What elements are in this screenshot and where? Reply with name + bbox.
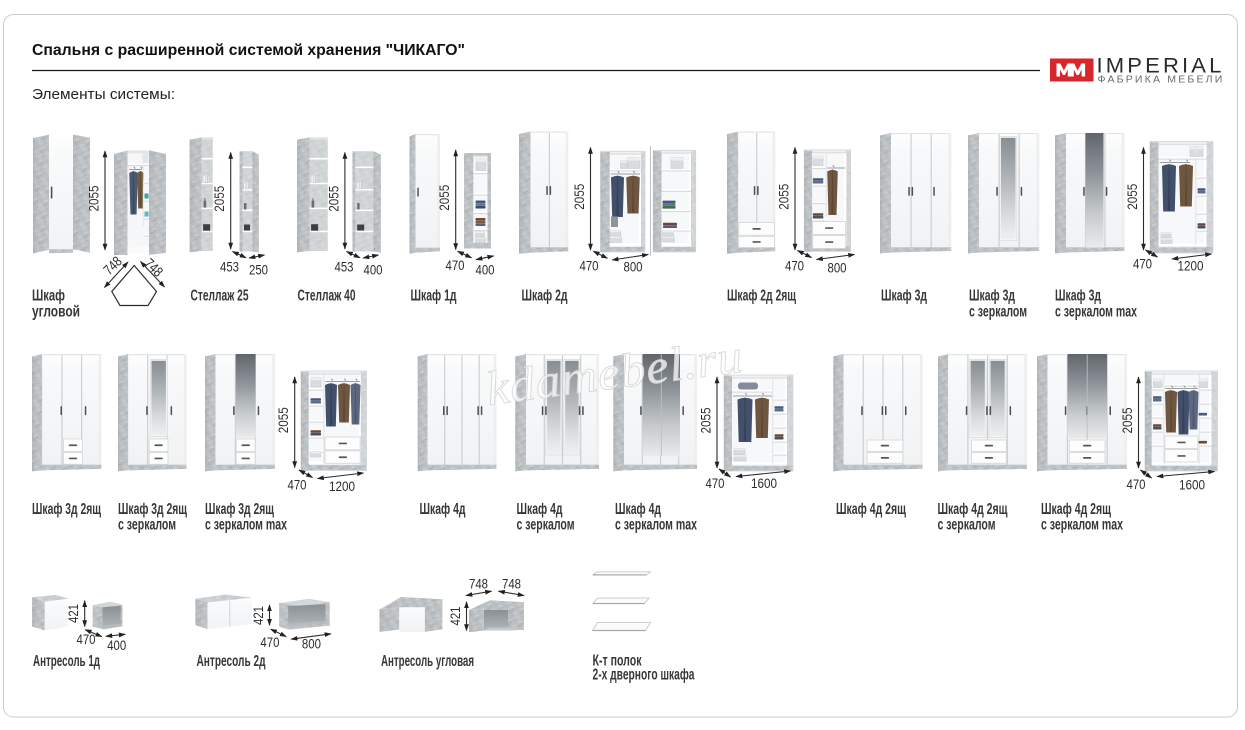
- svg-text:Шкаф 1д: Шкаф 1д: [411, 288, 457, 305]
- svg-text:1600: 1600: [1179, 478, 1205, 494]
- svg-text:Стеллаж 25: Стеллаж 25: [191, 288, 249, 305]
- svg-text:Шкаф: Шкаф: [32, 288, 65, 305]
- svg-text:800: 800: [828, 261, 847, 277]
- svg-text:421: 421: [448, 606, 464, 625]
- svg-text:2055: 2055: [1125, 184, 1141, 210]
- svg-text:Шкаф 4д 2ящ: Шкаф 4д 2ящ: [836, 501, 906, 518]
- svg-text:250: 250: [249, 263, 268, 279]
- svg-text:2055: 2055: [777, 184, 793, 210]
- svg-text:453: 453: [220, 260, 239, 276]
- svg-text:2055: 2055: [1120, 407, 1136, 433]
- svg-text:Шкаф 3д 2ящ: Шкаф 3д 2ящ: [118, 501, 187, 518]
- svg-text:470: 470: [706, 476, 725, 492]
- svg-text:748: 748: [502, 577, 521, 593]
- svg-text:2055: 2055: [212, 186, 228, 212]
- svg-text:Шкаф 3д: Шкаф 3д: [881, 288, 927, 305]
- svg-text:ФАБРИКА МЕБЕЛИ: ФАБРИКА МЕБЕЛИ: [1098, 75, 1225, 86]
- svg-text:453: 453: [335, 260, 354, 276]
- svg-text:1200: 1200: [329, 479, 355, 495]
- svg-text:470: 470: [580, 259, 599, 275]
- svg-text:800: 800: [302, 637, 321, 653]
- svg-text:Шкаф 4д: Шкаф 4д: [517, 501, 563, 518]
- svg-text:2055: 2055: [699, 407, 715, 433]
- svg-text:Антресоль 1д: Антресоль 1д: [33, 653, 100, 670]
- svg-text:470: 470: [785, 259, 804, 275]
- svg-text:2055: 2055: [87, 185, 103, 211]
- svg-text:421: 421: [251, 606, 267, 625]
- svg-text:1200: 1200: [1178, 259, 1204, 275]
- svg-text:2-х дверного шкафа: 2-х дверного шкафа: [593, 667, 695, 684]
- svg-text:Шкаф 3д: Шкаф 3д: [969, 288, 1015, 305]
- svg-text:Шкаф 2д: Шкаф 2д: [522, 288, 568, 305]
- svg-text:400: 400: [364, 263, 383, 279]
- svg-text:1600: 1600: [751, 476, 777, 492]
- svg-text:с зеркалом: с зеркалом: [969, 304, 1027, 321]
- svg-text:с зеркалом max: с зеркалом max: [1041, 517, 1123, 534]
- svg-text:Антресоль 2д: Антресоль 2д: [197, 653, 266, 670]
- svg-text:Шкаф 3д 2ящ: Шкаф 3д 2ящ: [32, 501, 101, 518]
- svg-text:421: 421: [66, 604, 82, 623]
- svg-text:Элементы системы:: Элементы системы:: [32, 86, 175, 103]
- svg-text:Шкаф 3д: Шкаф 3д: [1055, 288, 1101, 305]
- svg-text:Шкаф 3д 2ящ: Шкаф 3д 2ящ: [205, 501, 274, 518]
- svg-text:470: 470: [446, 258, 465, 274]
- svg-text:400: 400: [476, 263, 495, 279]
- svg-text:2055: 2055: [276, 407, 292, 433]
- svg-text:с зеркалом: с зеркалом: [938, 517, 996, 534]
- svg-text:2055: 2055: [326, 186, 342, 212]
- svg-text:с зеркалом max: с зеркалом max: [205, 517, 287, 534]
- svg-text:748: 748: [101, 254, 126, 279]
- svg-text:470: 470: [260, 635, 279, 651]
- svg-text:Стеллаж 40: Стеллаж 40: [298, 288, 356, 305]
- svg-text:с зеркалом max: с зеркалом max: [1055, 304, 1137, 321]
- svg-text:400: 400: [107, 638, 126, 654]
- svg-text:2055: 2055: [572, 184, 588, 210]
- svg-text:470: 470: [77, 632, 96, 648]
- svg-text:Шкаф 2д 2ящ: Шкаф 2д 2ящ: [727, 288, 796, 305]
- svg-text:Спальня с расширенной системой: Спальня с расширенной системой хранения …: [32, 42, 465, 59]
- svg-text:с зеркалом: с зеркалом: [118, 517, 176, 534]
- svg-text:470: 470: [1127, 477, 1146, 493]
- svg-text:с зеркалом: с зеркалом: [517, 517, 575, 534]
- svg-text:Шкаф 4д: Шкаф 4д: [420, 501, 466, 518]
- svg-text:470: 470: [1133, 257, 1152, 273]
- svg-text:800: 800: [624, 260, 643, 276]
- svg-text:с зеркалом max: с зеркалом max: [615, 517, 697, 534]
- svg-text:Шкаф 4д: Шкаф 4д: [615, 501, 661, 518]
- svg-text:угловой: угловой: [32, 304, 80, 321]
- svg-text:2055: 2055: [437, 185, 453, 211]
- svg-text:748: 748: [469, 577, 488, 593]
- svg-text:Антресоль угловая: Антресоль угловая: [381, 653, 474, 670]
- svg-text:470: 470: [288, 478, 307, 494]
- svg-text:Шкаф 4д 2ящ: Шкаф 4д 2ящ: [1041, 501, 1111, 518]
- svg-text:Шкаф 4д 2ящ: Шкаф 4д 2ящ: [938, 501, 1008, 518]
